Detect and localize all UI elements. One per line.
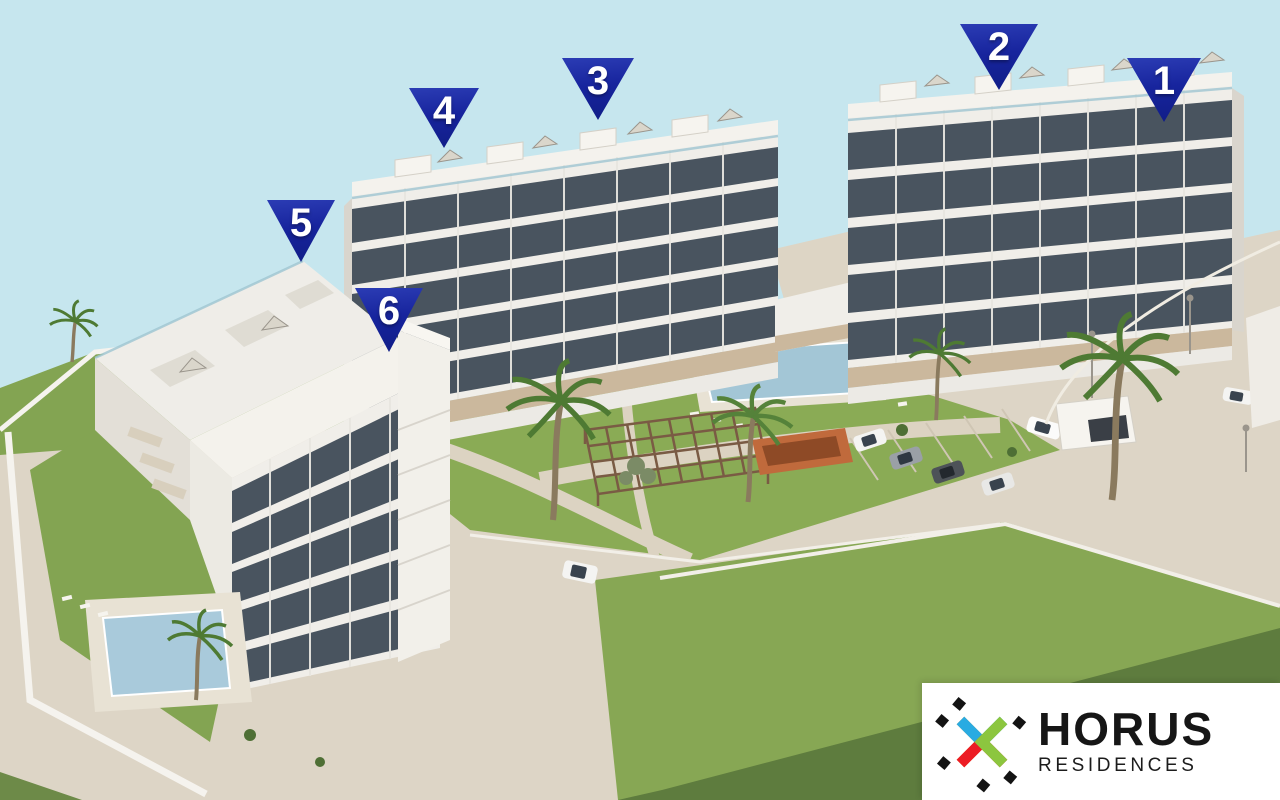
logo-text: HORUS RESIDENCES (1038, 706, 1214, 777)
logo-subtitle: RESIDENCES (1038, 755, 1214, 777)
marker-4-label: 4 (433, 91, 455, 131)
horus-logo-mark (930, 690, 1034, 794)
marker-1-label: 1 (1153, 61, 1175, 101)
site-plan-render: 1 2 3 4 5 6 HORUS RESIDENCES (0, 0, 1280, 800)
pinwheel-icon (935, 696, 1026, 791)
entrance-kiosk (1056, 396, 1136, 450)
marker-3-label: 3 (587, 61, 609, 101)
logo-title: HORUS (1038, 706, 1214, 752)
marker-5-label: 5 (290, 203, 312, 243)
logo-card: HORUS RESIDENCES (922, 683, 1280, 800)
marker-2-label: 2 (988, 27, 1010, 67)
neighbor-structure (1246, 306, 1280, 428)
render-scene (0, 0, 1280, 800)
left-pool (103, 610, 230, 696)
building-right (848, 52, 1244, 404)
marker-6-label: 6 (378, 291, 400, 331)
